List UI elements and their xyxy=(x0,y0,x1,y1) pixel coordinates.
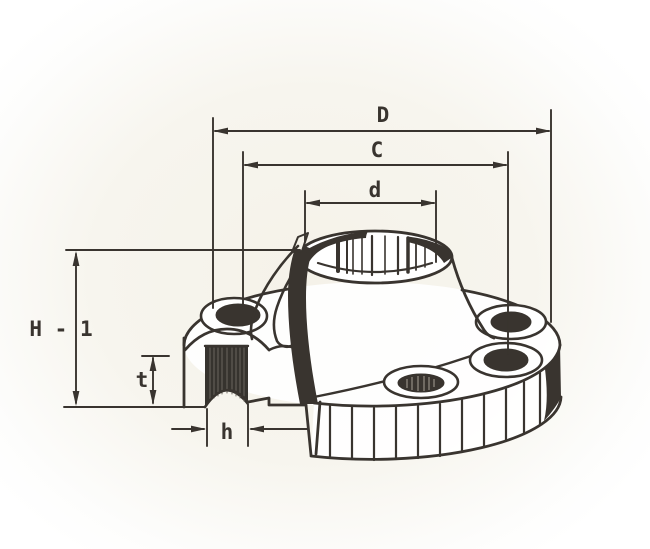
D-arrow-right xyxy=(536,128,551,135)
dimension-h xyxy=(172,404,307,446)
dimension-label-d: d xyxy=(369,178,382,202)
d-arrow-right xyxy=(421,200,436,207)
dimension-label-C: C xyxy=(371,138,384,162)
bolt-hole-lower-right xyxy=(484,349,528,371)
t-arrow-down xyxy=(150,390,157,405)
C-arrow-left xyxy=(243,162,258,169)
flange-technical-drawing: D C d H - 1 t h xyxy=(0,0,650,549)
neck-top-rim xyxy=(298,231,452,283)
dimension-label-D: D xyxy=(377,103,390,127)
bolt-hole-upper-right xyxy=(491,312,531,332)
t-arrow-up xyxy=(150,356,157,371)
bolt-hole-bottom xyxy=(398,374,444,392)
dimension-label-h: h xyxy=(221,420,234,444)
h-arrow-left xyxy=(191,426,206,433)
C-arrow-right xyxy=(493,162,508,169)
D-arrow-left xyxy=(213,128,228,135)
dimension-label-H1: H - 1 xyxy=(29,317,92,341)
drawing-canvas: D C d H - 1 t h xyxy=(0,0,650,549)
front-cut-edge-1 xyxy=(306,405,311,455)
H1-arrow-down xyxy=(73,391,80,406)
H1-arrow-up xyxy=(73,251,80,266)
h-arrow-right xyxy=(249,426,264,433)
dimension-label-t: t xyxy=(136,368,149,392)
d-arrow-left xyxy=(305,200,320,207)
